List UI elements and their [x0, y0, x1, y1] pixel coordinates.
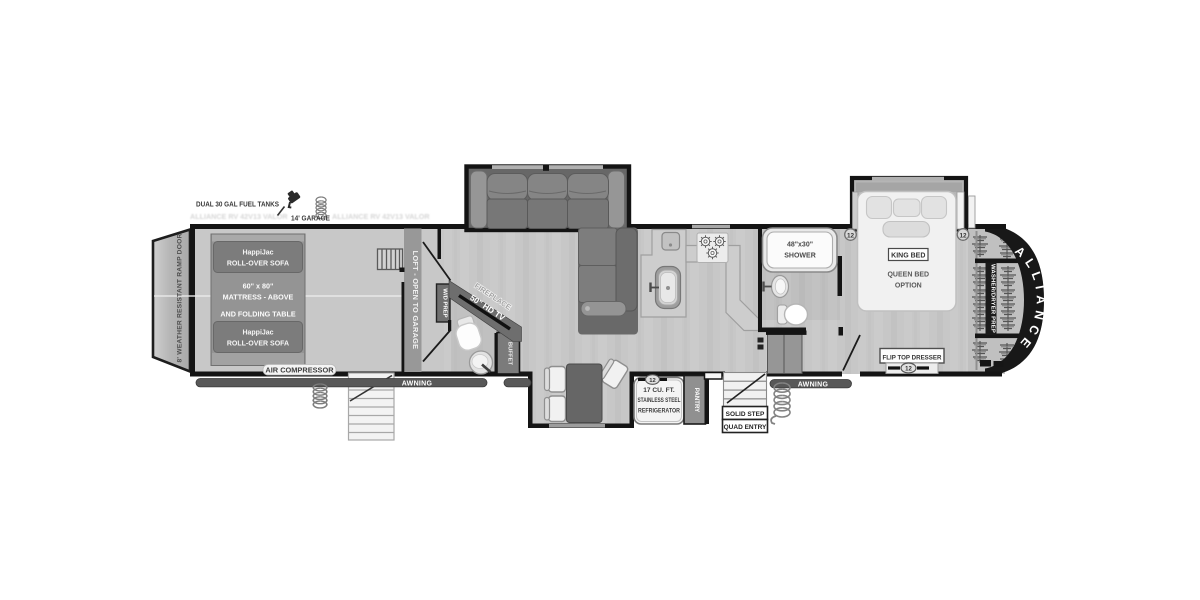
svg-text:HappiJac: HappiJac	[242, 330, 273, 337]
svg-text:60" x 80": 60" x 80"	[243, 282, 274, 291]
svg-text:LOFT - OPEN TO GARAGE: LOFT - OPEN TO GARAGE	[411, 251, 420, 350]
svg-text:DUAL 30 GAL FUEL TANKS: DUAL 30 GAL FUEL TANKS	[196, 200, 279, 209]
svg-text:SOLID STEP: SOLID STEP	[726, 411, 765, 418]
svg-text:PANTRY: PANTRY	[693, 388, 700, 412]
svg-text:ROLL-OVER SOFA: ROLL-OVER SOFA	[227, 341, 289, 348]
svg-text:48"x30": 48"x30"	[787, 242, 813, 249]
svg-text:FLIP TOP DRESSER: FLIP TOP DRESSER	[883, 354, 942, 361]
svg-text:AWNING: AWNING	[798, 382, 829, 389]
svg-text:SHOWER: SHOWER	[784, 253, 816, 260]
svg-text:REFRIGERATOR: REFRIGERATOR	[638, 408, 680, 415]
svg-text:12: 12	[959, 232, 967, 239]
svg-text:AIR COMPRESSOR: AIR COMPRESSOR	[265, 366, 334, 375]
svg-text:12: 12	[649, 378, 655, 384]
svg-text:8' WEATHER RESISTANT RAMP DOOR: 8' WEATHER RESISTANT RAMP DOOR	[177, 233, 184, 362]
svg-text:12: 12	[847, 232, 855, 239]
svg-text:OPTION: OPTION	[895, 283, 922, 290]
svg-text:BUFFET: BUFFET	[507, 342, 513, 366]
svg-text:ALLIANCE RV 42V13 VALOR: ALLIANCE RV 42V13 VALOR	[332, 212, 430, 221]
svg-text:W/D PREP: W/D PREP	[441, 288, 447, 317]
svg-text:14' GARAGE: 14' GARAGE	[291, 214, 330, 223]
svg-text:AWNING: AWNING	[402, 381, 433, 388]
svg-text:12: 12	[905, 367, 912, 373]
svg-text:QUAD ENTRY: QUAD ENTRY	[724, 424, 767, 431]
svg-text:STAINLESS STEEL: STAINLESS STEEL	[638, 397, 681, 404]
svg-text:QUEEN BED: QUEEN BED	[887, 272, 929, 279]
svg-text:KING BED: KING BED	[891, 253, 925, 260]
svg-text:AND FOLDING TABLE: AND FOLDING TABLE	[220, 310, 296, 319]
svg-text:WASHER/DRYER PREP: WASHER/DRYER PREP	[989, 264, 995, 333]
svg-text:MATTRESS - ABOVE: MATTRESS - ABOVE	[223, 293, 294, 302]
svg-text:ROLL-OVER SOFA: ROLL-OVER SOFA	[227, 261, 289, 268]
svg-text:HappiJac: HappiJac	[242, 250, 273, 257]
svg-text:17 CU. FT.: 17 CU. FT.	[643, 387, 675, 394]
svg-text:ALLIANCE RV 42V13 VALOR: ALLIANCE RV 42V13 VALOR	[190, 212, 288, 221]
